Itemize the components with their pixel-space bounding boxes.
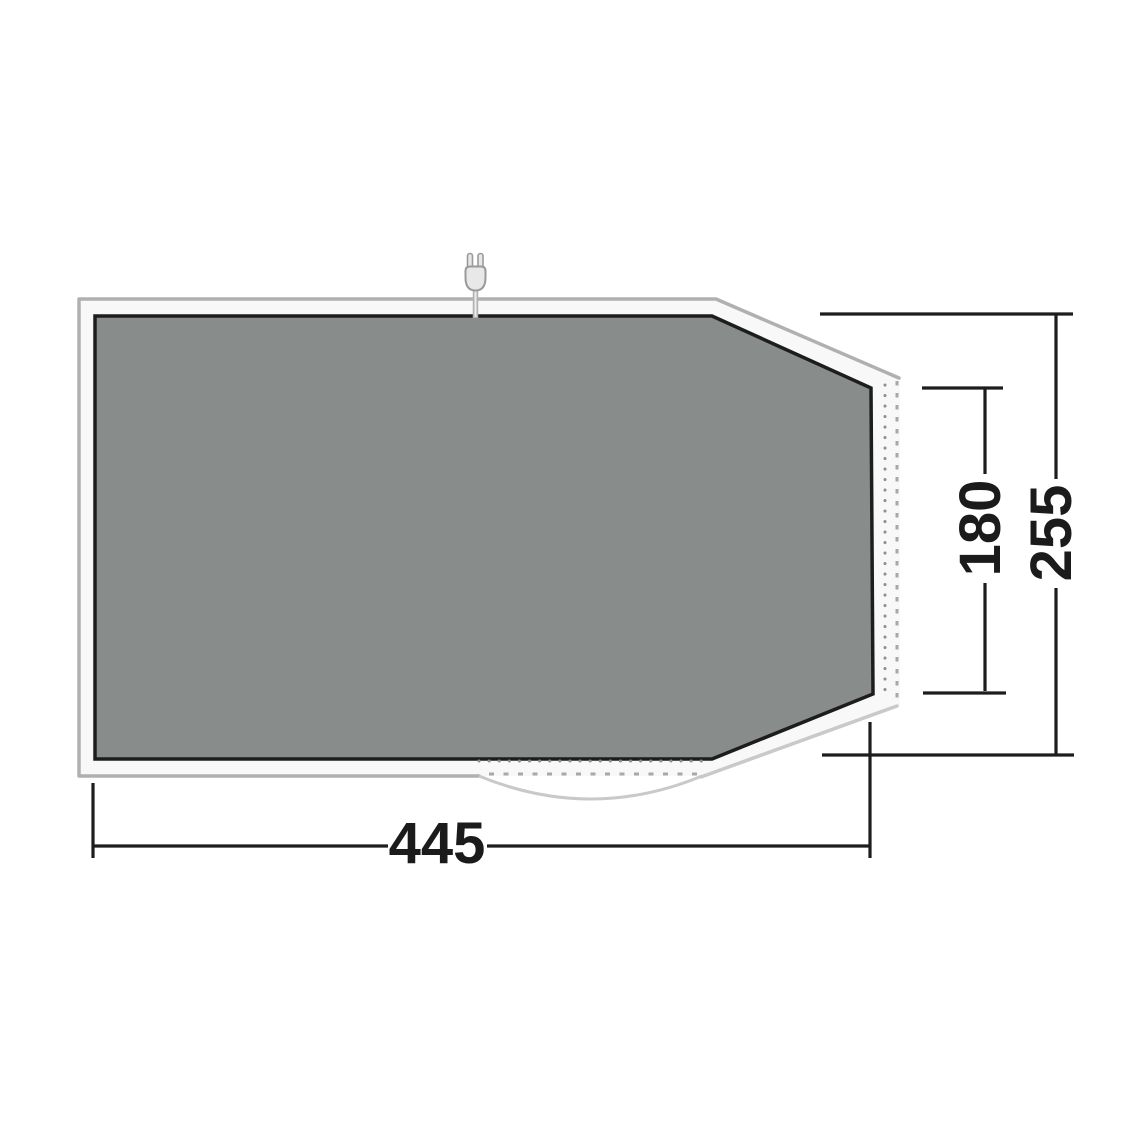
dimension-total-height-label: 255 — [1019, 485, 1084, 582]
dimension-width-label: 445 — [389, 811, 486, 876]
footprint-diagram: 445 180 255 — [0, 0, 1140, 1140]
plug-body — [466, 267, 486, 291]
door-swing-arc — [479, 776, 702, 799]
diagram-canvas: 445 180 255 — [0, 0, 1140, 1140]
dimension-rear-height-label: 180 — [948, 480, 1013, 577]
groundsheet — [95, 316, 873, 759]
